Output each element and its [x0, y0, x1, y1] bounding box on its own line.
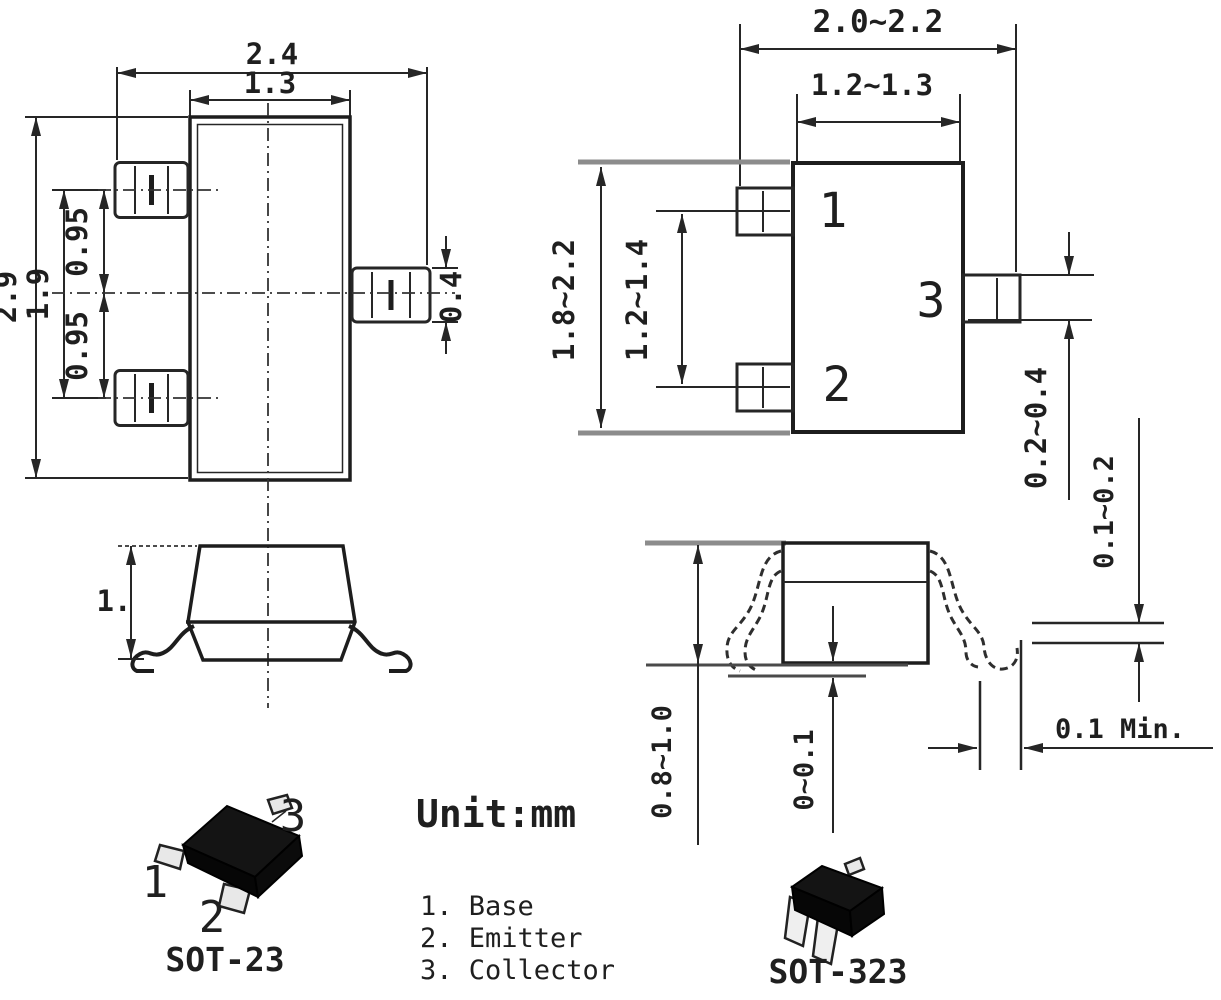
- sot23-3d-pin3-label: 3: [280, 791, 307, 842]
- dim-overall-width: 2.0~2.2: [813, 4, 944, 40]
- sot323-left-lead-outer: [727, 551, 781, 671]
- dim-lead-width: 0.4: [434, 271, 468, 323]
- sot23-side-view: 1.: [97, 546, 411, 671]
- dim-standoff: 0~0.1: [789, 729, 820, 810]
- sot323-pin1-label: 1: [819, 183, 848, 239]
- dim-overall-height: 2.9: [0, 271, 23, 323]
- drawing-canvas: 2.4 1.3 2.9 1.9 0.95 0.95 0.4 1.: [0, 0, 1221, 1000]
- sot23-right-lead: [349, 626, 411, 671]
- pin-outline: [963, 275, 1020, 322]
- sot23-pin3: [352, 268, 430, 322]
- sot323-side-body: [783, 543, 928, 663]
- sot323-side-view: 0.8~1.0 0~0.1 0.1~0.2 0.1 Min.: [645, 418, 1213, 845]
- sot323-caption: SOT-323: [768, 952, 907, 991]
- dim-lead-width: 0.2~0.4: [1019, 367, 1053, 489]
- dim-lead-span: 1.2~1.4: [620, 239, 654, 361]
- sot23-side-body: [188, 546, 355, 660]
- dim-body-width: 1.2~1.3: [811, 68, 933, 102]
- dim-pitch-lower: 0.95: [60, 311, 94, 381]
- legend: Unit:mm 1. Base 2. Emitter 3. Collector: [416, 792, 615, 986]
- dim-overall-height: 1.8~2.2: [547, 239, 581, 361]
- sot23-3d-pin1-label: 1: [142, 857, 169, 908]
- dim-profile-height: 1.: [97, 584, 132, 618]
- dim-body-height: 0.8~1.0: [647, 705, 678, 819]
- sot23-body-outline: [190, 117, 350, 480]
- package-dimension-drawing: 2.4 1.3 2.9 1.9 0.95 0.95 0.4 1.: [0, 0, 1221, 1000]
- sot323-right-lead-outer: [930, 551, 1017, 669]
- sot23-body-inner-line: [198, 125, 343, 473]
- sot323-pin2-label: 2: [823, 357, 852, 413]
- sot323-left-lead-inner: [745, 571, 781, 670]
- dim-clearance: 0.1 Min.: [1055, 714, 1185, 745]
- dim-body-width: 1.3: [244, 66, 296, 100]
- sot23-3d-pin2-label: 2: [199, 892, 226, 943]
- sot23-caption: SOT-23: [165, 940, 284, 979]
- sot23-left-lead: [132, 626, 194, 671]
- sot323-pin3: [963, 275, 1020, 322]
- sot23-top-view: 2.4 1.3 2.9 1.9 0.95 0.95 0.4: [0, 37, 468, 708]
- sot323-3d-view: SOT-323: [768, 858, 907, 991]
- legend-item-base: 1. Base: [420, 891, 534, 922]
- sot323-pin3-label: 3: [917, 273, 946, 329]
- sot23-3d-view: 1 2 3 SOT-23: [142, 791, 307, 979]
- legend-item-collector: 3. Collector: [420, 955, 615, 986]
- dim-pitch-upper: 0.95: [60, 207, 94, 277]
- legend-item-emitter: 2. Emitter: [420, 923, 583, 954]
- unit-label: Unit:mm: [416, 792, 576, 836]
- dim-lead-thickness: 0.1~0.2: [1089, 455, 1120, 569]
- sot323-top-view: 1 2 3 2.0~2.2 1.2~1.3 1.8~2.2 1.2~1.4 0.…: [547, 4, 1094, 500]
- dim-lead-span: 1.9: [21, 268, 55, 320]
- sot323-3d-lead3: [845, 858, 864, 875]
